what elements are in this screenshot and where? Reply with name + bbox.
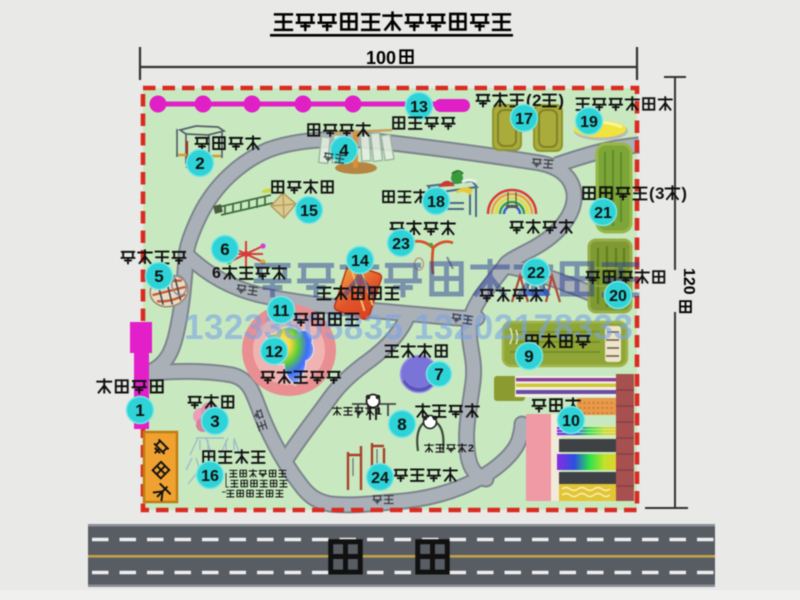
svg-text:17: 17 (515, 111, 533, 128)
svg-text:13: 13 (410, 99, 428, 116)
svg-text:1: 1 (135, 401, 144, 420)
svg-text:100: 100 (366, 48, 396, 68)
svg-text:10: 10 (562, 413, 580, 430)
svg-text:21: 21 (594, 205, 612, 222)
svg-text:24: 24 (371, 470, 389, 487)
svg-text:20: 20 (609, 288, 627, 305)
svg-text:2: 2 (532, 91, 541, 110)
svg-text:3: 3 (655, 184, 664, 203)
svg-text:2: 2 (195, 154, 204, 173)
svg-text:6: 6 (212, 265, 221, 282)
svg-text:120: 120 (680, 268, 697, 295)
svg-text:): ) (681, 184, 687, 203)
svg-text:7: 7 (434, 365, 443, 384)
svg-text:5: 5 (154, 267, 163, 286)
svg-text:18: 18 (427, 194, 445, 211)
svg-text:15: 15 (300, 203, 318, 220)
svg-text:1: 1 (376, 406, 382, 418)
svg-text:16: 16 (201, 468, 219, 485)
svg-text:6: 6 (220, 240, 229, 259)
svg-text:3: 3 (210, 412, 219, 431)
svg-text:22: 22 (527, 265, 545, 282)
svg-text:(: ( (649, 184, 655, 203)
svg-text:2: 2 (468, 443, 474, 455)
svg-text:23: 23 (392, 236, 410, 253)
svg-text:9: 9 (524, 347, 533, 366)
svg-text:): ) (558, 91, 564, 110)
svg-text:8: 8 (397, 415, 406, 434)
svg-text:4: 4 (339, 141, 349, 160)
svg-text:14: 14 (351, 253, 369, 270)
svg-text:11: 11 (273, 303, 290, 320)
svg-text:12: 12 (265, 344, 283, 361)
svg-text:19: 19 (580, 114, 598, 131)
